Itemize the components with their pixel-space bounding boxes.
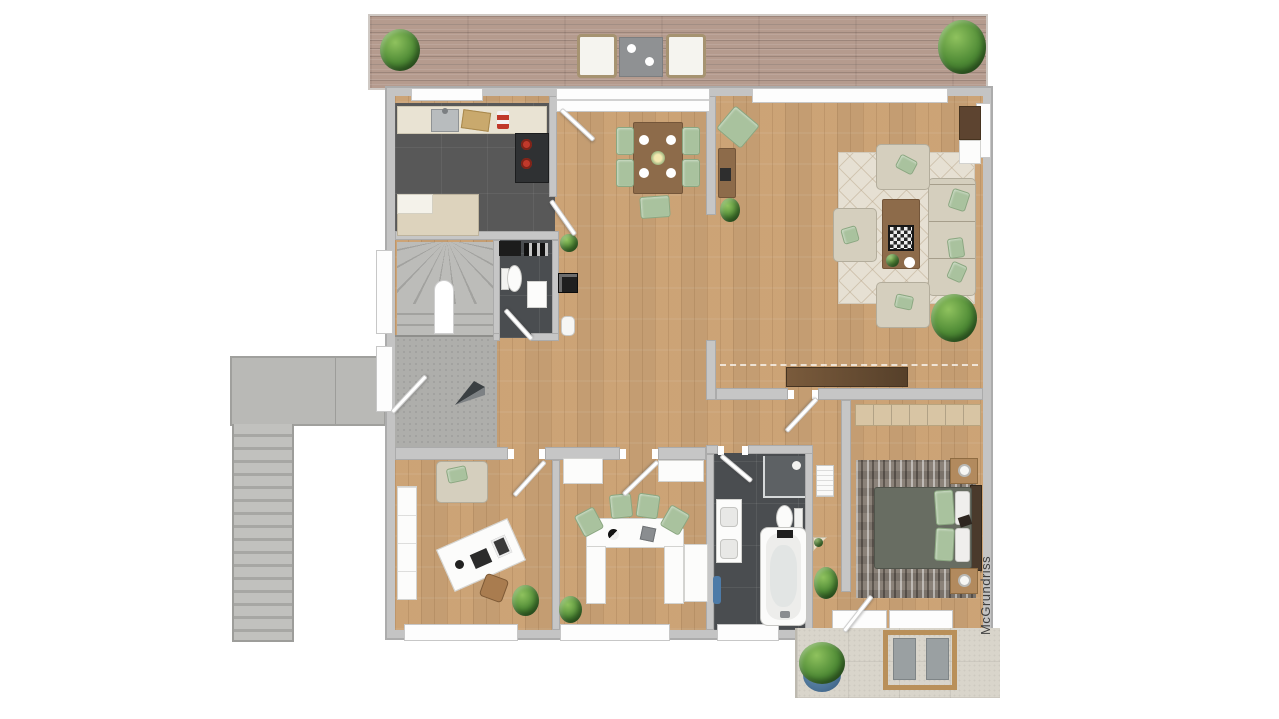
bedroom-wardrobe — [855, 404, 981, 426]
bath-window — [717, 624, 779, 641]
office-wardrobe — [397, 486, 417, 600]
wall-bath-top-left — [706, 445, 718, 454]
sideboard-decor — [720, 168, 731, 181]
floor-plan-canvas: McGrundriss — [0, 0, 1279, 719]
hall-plant — [560, 234, 578, 252]
kitchen-stove — [515, 133, 549, 183]
dining-plate-3 — [639, 168, 649, 178]
wall-kids-bath — [706, 454, 714, 630]
living-south-dash-line — [720, 364, 978, 366]
partition-plant — [720, 198, 740, 222]
landing-seam — [335, 358, 336, 424]
wall-living-south-left — [716, 388, 788, 400]
desk-box — [640, 526, 657, 543]
jamb — [788, 390, 794, 399]
bed-pillow-white-2 — [955, 528, 970, 562]
wc-counter — [499, 241, 521, 256]
spice-jars — [497, 111, 509, 129]
dining-plate-4 — [666, 168, 676, 178]
kitchen-base-cabinet-top — [397, 194, 433, 214]
dining-plate-1 — [639, 135, 649, 145]
kids-cabinet-right — [658, 460, 704, 482]
wall-wc-bottom-left — [493, 333, 500, 341]
terrace-plant-left — [380, 29, 420, 71]
terrace-side-table — [619, 37, 663, 77]
bath-tray — [777, 530, 793, 538]
stove-burner-1 — [521, 139, 532, 150]
desk-chair — [635, 493, 660, 520]
dining-chair — [616, 159, 634, 187]
wall-living-south-right — [818, 388, 983, 400]
hall-mirror — [558, 273, 578, 293]
media-console-shelf — [959, 140, 981, 164]
corridor-plant — [814, 567, 838, 599]
wall-dining-living-partition — [706, 96, 716, 215]
dining-terrace-slider — [556, 88, 710, 112]
office-plant — [512, 585, 539, 616]
lounge-chair-right — [926, 638, 949, 680]
desk-chair — [609, 493, 633, 519]
dining-chair — [639, 195, 670, 219]
bathtub-inner — [770, 545, 797, 607]
bath-towel — [713, 576, 721, 604]
terrace-armchair-left — [577, 34, 617, 78]
bath-toilet-tank — [794, 508, 803, 528]
dining-plate-2 — [666, 135, 676, 145]
table-plate — [904, 257, 915, 268]
kids-window — [560, 624, 670, 641]
wall-bath-top-right — [748, 445, 813, 454]
wall-wc-bottom-right — [531, 333, 559, 341]
terrace-plate-1 — [627, 44, 636, 53]
terrace-armchair-right — [666, 34, 706, 78]
shower-head — [792, 461, 801, 470]
bed-pillow-green-2 — [934, 528, 955, 562]
stair-arch-marker — [434, 280, 454, 334]
low-sideboard — [786, 367, 908, 387]
kids-tall-cabinet — [684, 544, 708, 602]
jamb — [508, 449, 514, 459]
kids-cabinet-left — [563, 458, 603, 484]
office-window — [404, 624, 518, 641]
wc-washbasin — [527, 281, 547, 308]
living-plant — [931, 294, 977, 342]
corridor-radiator — [816, 465, 834, 497]
bathtub-faucet — [780, 611, 790, 618]
patio-plant — [799, 642, 845, 684]
wall-hall-south-3 — [658, 447, 706, 460]
dining-chair — [616, 127, 634, 155]
entry-landing — [230, 356, 386, 426]
nightstand-lamp-bottom — [958, 574, 971, 587]
sofa-pillow — [947, 237, 966, 259]
kitchen-faucet — [442, 108, 448, 114]
exterior-staircase — [232, 424, 294, 642]
wall-bedroom-left — [841, 400, 851, 592]
bed-pillow-green-1 — [934, 489, 955, 525]
media-console-wood — [959, 106, 981, 140]
entrance-arrow-icon — [452, 374, 490, 410]
jamb — [539, 449, 545, 459]
bath-sink-2 — [720, 539, 738, 559]
wc-vent-grilles — [524, 243, 548, 256]
office-mug — [455, 560, 464, 569]
jamb — [742, 446, 748, 455]
living-window-top — [752, 88, 948, 103]
wc-toilet-bowl — [507, 265, 522, 292]
bath-sink-1 — [720, 507, 738, 527]
lounge-chair-left — [893, 638, 916, 680]
dining-chair — [682, 127, 700, 155]
corner-shelf-plant — [814, 538, 823, 547]
cutting-board — [461, 109, 491, 132]
hall-bin — [561, 316, 575, 336]
kitchen-window — [411, 88, 483, 101]
entry-door-opening — [376, 346, 393, 412]
dining-chair — [682, 159, 700, 187]
wall-hall-living-stub — [706, 340, 716, 400]
terrace-plate-2 — [645, 57, 654, 66]
nightstand-lamp-top — [958, 464, 971, 477]
table-plant — [886, 254, 899, 267]
dining-centerpiece — [651, 151, 665, 165]
u-desk-left-leg — [586, 546, 606, 604]
wall-hall-south-1 — [395, 447, 508, 460]
jamb — [620, 449, 626, 459]
jamb — [652, 449, 658, 459]
u-desk-right-leg — [664, 546, 684, 604]
terrace-plant-right — [938, 20, 986, 74]
chessboard — [888, 225, 914, 251]
kids-plant — [559, 596, 582, 623]
stove-burner-2 — [521, 158, 532, 169]
stair-window-left — [376, 250, 393, 334]
watermark-text: McGrundriss — [978, 533, 996, 635]
desk-globe — [608, 529, 619, 540]
